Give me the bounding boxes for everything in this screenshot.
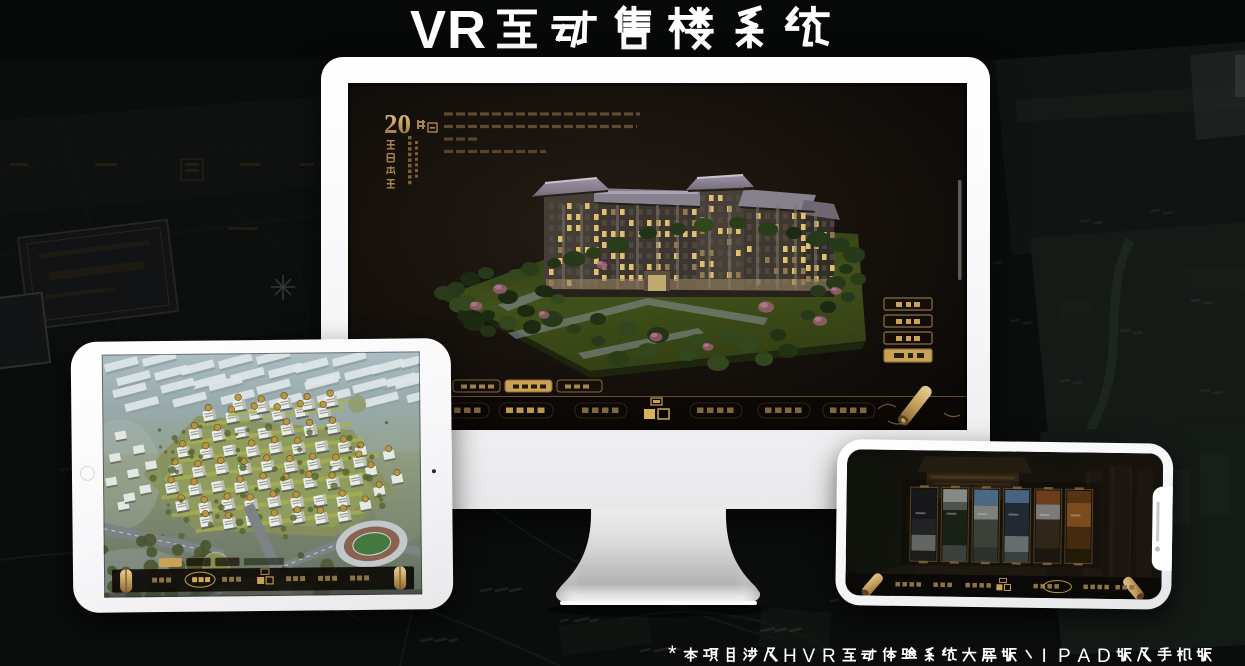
svg-text:R: R [822, 646, 836, 666]
svg-text:V: V [803, 646, 816, 666]
svg-text:P: P [1058, 646, 1071, 666]
svg-text:I: I [1042, 646, 1047, 666]
svg-text:D: D [1097, 646, 1111, 666]
svg-text:H: H [783, 646, 797, 666]
svg-text:VR: VR [410, 0, 487, 60]
svg-text:*: * [668, 641, 677, 666]
svg-text:A: A [1078, 646, 1091, 666]
svg-text:20: 20 [384, 109, 411, 139]
